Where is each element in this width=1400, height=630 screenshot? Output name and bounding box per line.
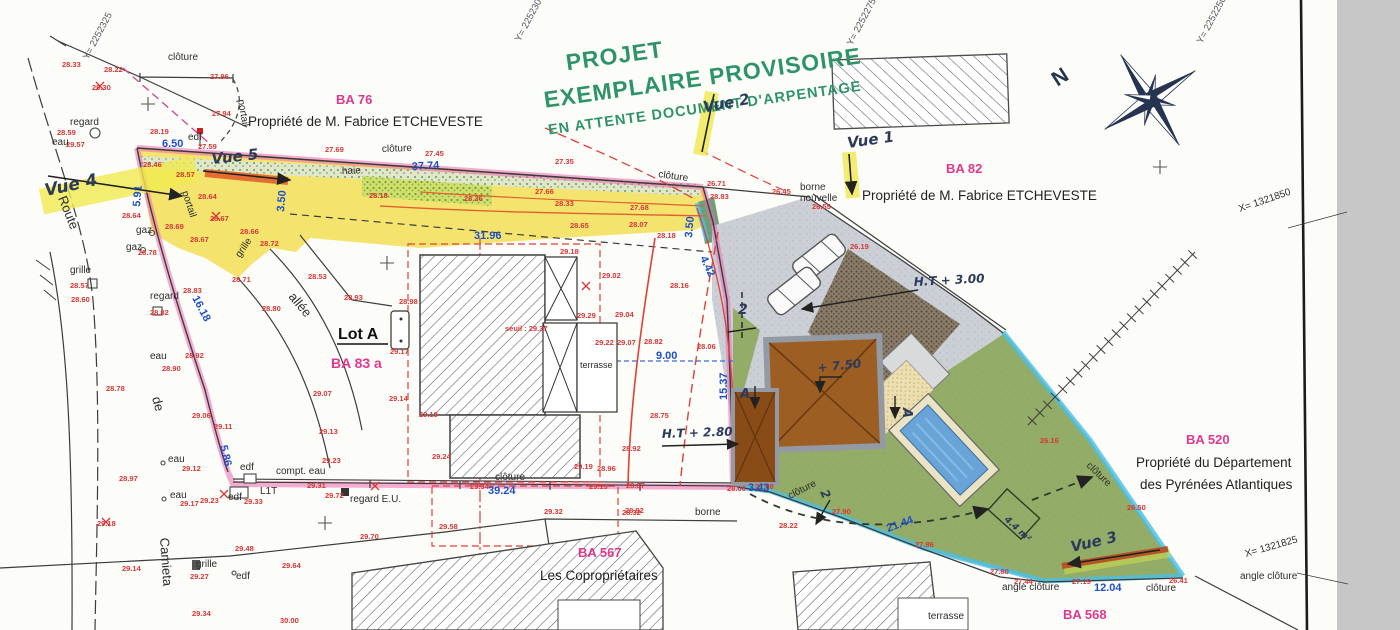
spot-elevation-labels-16: 28.66 [240, 227, 259, 236]
compteur-eau-symbol [244, 474, 256, 483]
spot-elevation-labels-12: 28.64 [122, 211, 142, 220]
feature-labels-16: eau [168, 454, 185, 465]
dimension-labels-8: 9.00 [656, 350, 677, 362]
dimension-labels-5: 31.96 [474, 230, 502, 242]
owner-ba520-line2: des Pyrénées Atlantiques [1140, 477, 1293, 492]
spot-elevation-labels-42: 29.18 [97, 519, 116, 528]
spot-elevation-labels-71: 28.92 [622, 444, 641, 453]
spot-elevation-labels-62: 29.18 [560, 247, 579, 256]
spot-elevation-labels-68: 28.82 [644, 337, 663, 346]
lot-a-label: Lot A [338, 326, 379, 343]
handwritten-notes-8: A [739, 387, 750, 402]
feature-labels-2: edf [188, 132, 202, 143]
feature-labels-17: eau [170, 490, 187, 501]
spot-elevation-labels-21: 28.71 [232, 275, 251, 284]
spot-elevation-labels-89: 26.19 [850, 242, 869, 251]
spot-elevation-labels-86: 28.83 [710, 192, 729, 201]
spot-elevation-labels-77: 28.22 [779, 521, 798, 530]
spot-elevation-labels-14: 28.69 [165, 222, 184, 231]
spot-elevation-labels-47: 30.00 [280, 616, 299, 625]
spot-elevation-labels-73: 28.92 [625, 506, 644, 515]
feature-labels-30: clôture [495, 472, 525, 483]
feature-labels-36: angle clôture [1002, 582, 1060, 593]
spot-elevation-labels-65: 29.04 [615, 310, 635, 319]
spot-elevation-labels-1: 28.22 [104, 65, 123, 74]
spot-elevation-labels-82: 26.16 [1040, 436, 1059, 445]
scanner-margin [1337, 0, 1400, 630]
spot-elevation-labels-69: 28.06 [697, 342, 716, 351]
spot-elevation-labels-5: 28.19 [150, 127, 169, 136]
spot-elevation-labels-8: 29.57 [66, 140, 85, 149]
spot-elevation-labels-28: 28.78 [106, 384, 125, 393]
spot-elevation-labels-31: 29.07 [313, 389, 332, 398]
feature-labels-9: regard [150, 291, 179, 302]
spot-elevation-labels-25: 28.82 [150, 308, 169, 317]
spot-elevation-labels-52: 29.24 [432, 452, 452, 461]
spot-elevation-labels-70: 28.75 [650, 411, 669, 420]
spot-elevation-labels-64: 29.29 [577, 311, 596, 320]
spot-elevation-labels-46: 29.64 [282, 561, 302, 570]
dimension-labels-2: 3.50 [275, 190, 289, 212]
spot-elevation-labels-57: 28.93 [344, 293, 363, 302]
dimension-labels-14: 12.04 [1094, 582, 1122, 594]
spot-elevation-labels-26: 28.92 [185, 351, 204, 360]
parcel-id-ba520: BA 520 [1186, 432, 1230, 447]
spot-elevation-labels-66: 29.22 [595, 338, 614, 347]
spot-elevation-labels-39: 29.13 [319, 427, 338, 436]
spot-elevation-labels-38: 29.72 [325, 491, 344, 500]
spot-elevation-labels-2: 29.30 [92, 83, 111, 92]
owner-ba567: Les Copropriétaires [540, 568, 658, 583]
spot-elevation-labels-36: 29.33 [244, 497, 263, 506]
spot-elevation-labels-33: 29.12 [182, 464, 201, 473]
feature-labels-37: clôture [1146, 583, 1176, 594]
spot-elevation-labels-19: 28.57 [70, 281, 89, 290]
spot-elevation-labels-0: 28.33 [62, 60, 81, 69]
spot-elevation-labels-41: 29.14 [122, 564, 142, 573]
parcel-id-ba567: BA 567 [578, 545, 622, 560]
parcel-id-ba568: BA 568 [1063, 607, 1107, 622]
spot-elevation-labels-45: 29.34 [192, 609, 212, 618]
spot-elevation-labels-48: 29.70 [360, 532, 379, 541]
spot-elevation-labels-92: 27.69 [325, 145, 344, 154]
owner-ba520-line1: Propriété du Département [1136, 455, 1292, 470]
spot-elevation-labels-78: 27.86 [915, 540, 934, 549]
spot-elevation-labels-24: 28.80 [262, 304, 281, 313]
spot-elevation-labels-54: 29.19 [574, 462, 593, 471]
feature-labels-20: compt. eau [276, 466, 325, 477]
handwritten-notes-10: 2 [738, 302, 748, 318]
feature-labels-32: borne [695, 507, 721, 518]
owner-ba76: Propriété de M. Fabrice ETCHEVESTE [248, 114, 483, 129]
feature-labels-6: gaz [136, 225, 152, 236]
spot-elevation-labels-40: 29.23 [322, 456, 341, 465]
spot-elevation-labels-59: 29.17 [390, 347, 409, 356]
spot-elevation-labels-53: 29.34 [470, 482, 490, 491]
feature-labels-22: regard E.U. [350, 494, 401, 505]
spot-elevation-labels-10: 28.57 [176, 170, 195, 179]
spot-elevation-labels-81: 26.50 [1127, 503, 1146, 512]
spot-elevation-labels-44: 29.27 [190, 572, 209, 581]
handwritten-notes-9: A [899, 407, 914, 418]
spot-elevation-labels-95: 28.18 [369, 191, 388, 200]
spot-elevation-labels-50: 29.32 [544, 507, 563, 516]
dimension-labels-1: 5.91 [131, 185, 145, 207]
spot-elevation-labels-56: 29.19 [589, 482, 608, 491]
feature-labels-24: edf [236, 571, 250, 582]
feature-labels-4: eau [52, 137, 69, 148]
spot-elevation-labels-3: 27.96 [210, 72, 229, 81]
feature-labels-3: regard [70, 117, 99, 128]
spot-elevation-labels-29: 29.06 [192, 411, 211, 420]
feature-labels-15: eau [150, 351, 167, 362]
spot-elevation-labels-11: 28.64 [198, 192, 218, 201]
feature-labels-21: L1T [260, 486, 277, 497]
spot-elevation-labels-74: 28.06 [727, 484, 746, 493]
dimension-labels-3: 3.50 [683, 216, 697, 238]
feature-labels-7: gaz [126, 242, 142, 253]
spot-elevation-labels-97: 27.66 [535, 187, 554, 196]
spot-elevation-labels-87: 26.45 [772, 187, 791, 196]
feature-labels-38: angle clôture [1240, 571, 1298, 582]
spot-elevation-labels-99: 27.68 [630, 203, 649, 212]
spot-elevation-labels-7: 28.59 [57, 128, 76, 137]
dimension-labels-11: 39.24 [488, 485, 516, 497]
feature-labels-0: clôture [168, 52, 198, 63]
feature-labels-26: haie [342, 165, 362, 177]
feature-labels-28: borne [800, 182, 826, 193]
dimension-labels-12: 3.43 [748, 482, 769, 494]
dimension-labels-9: 15.37 [718, 372, 730, 400]
spot-elevation-labels-90: 28.18 [657, 231, 676, 240]
spot-elevation-labels-43: 29.48 [235, 544, 254, 553]
parcel-id-ba82: BA 82 [946, 161, 982, 176]
spot-elevation-labels-100: 28.65 [570, 221, 589, 230]
spot-elevation-labels-67: 29.07 [617, 338, 636, 347]
spot-elevation-labels-49: 29.58 [439, 522, 458, 531]
spot-elevation-labels-91: 28.16 [670, 281, 689, 290]
spot-elevation-labels-60: 29.14 [389, 394, 409, 403]
feature-labels-19: edf [228, 492, 242, 503]
spot-elevation-labels-102: seuil : 29.37 [505, 324, 548, 333]
spot-elevation-labels-35: 29.23 [200, 496, 219, 505]
dimension-labels-0: 6.50 [162, 138, 183, 150]
spot-elevation-labels-79: 27.80 [990, 567, 1009, 576]
feature-labels-33: terrasse [580, 360, 613, 370]
spot-elevation-labels-85: 26.71 [707, 179, 726, 188]
spot-elevation-labels-13: 28.67 [210, 214, 229, 223]
parcel-id-ba76: BA 76 [336, 92, 372, 107]
feature-labels-29: nouvelle [800, 193, 838, 204]
parcel-id-ba83a: BA 83 a [331, 355, 382, 371]
spot-elevation-labels-37: 29.31 [307, 481, 326, 490]
survey-plan-drawing: PROJET EXEMPLAIRE PROVISOIRE EN ATTENTE … [0, 0, 1400, 630]
handwritten-notes-5: H.T + 2.80 [662, 425, 733, 441]
spot-elevation-labels-101: 28.07 [629, 220, 648, 229]
spot-elevation-labels-55: 28.96 [597, 464, 616, 473]
feature-labels-25: clôture [382, 143, 413, 155]
spot-elevation-labels-76: 27.90 [832, 507, 851, 516]
spot-elevation-labels-27: 28.90 [162, 364, 181, 373]
spot-elevation-labels-32: 28.97 [119, 474, 138, 483]
spot-elevation-labels-61: 29.19 [419, 410, 438, 419]
feature-labels-23: grille [196, 559, 218, 570]
spot-elevation-labels-83: 27.19 [1072, 577, 1091, 586]
owner-ba82: Propriété de M. Fabrice ETCHEVESTE [862, 188, 1097, 203]
dimension-labels-4: 37.74 [412, 160, 441, 173]
spot-elevation-labels-30: 29.11 [214, 422, 232, 431]
spot-elevation-labels-96: 28.36 [464, 194, 483, 203]
feature-labels-8: grille [70, 265, 92, 276]
spot-elevation-labels-63: 29.02 [602, 271, 621, 280]
spot-elevation-labels-22: 28.53 [308, 272, 327, 281]
survey-plan-page: PROJET EXEMPLAIRE PROVISOIRE EN ATTENTE … [0, 0, 1400, 630]
spot-elevation-labels-93: 27.45 [425, 149, 444, 158]
spot-elevation-labels-17: 28.72 [260, 239, 279, 248]
spot-elevation-labels-9: 28.46 [143, 160, 162, 169]
feature-labels-34: terrasse [928, 611, 965, 622]
spot-elevation-labels-15: 28.67 [190, 235, 209, 244]
spot-elevation-labels-72: 28.87 [626, 481, 645, 490]
spot-elevation-labels-20: 28.60 [71, 295, 90, 304]
spot-elevation-labels-4: 27.94 [212, 109, 232, 118]
spot-elevation-labels-98: 28.33 [555, 199, 574, 208]
spot-elevation-labels-94: 27.35 [555, 157, 574, 166]
feature-labels-18: edf [240, 462, 254, 473]
spot-elevation-labels-58: 28.98 [399, 297, 418, 306]
